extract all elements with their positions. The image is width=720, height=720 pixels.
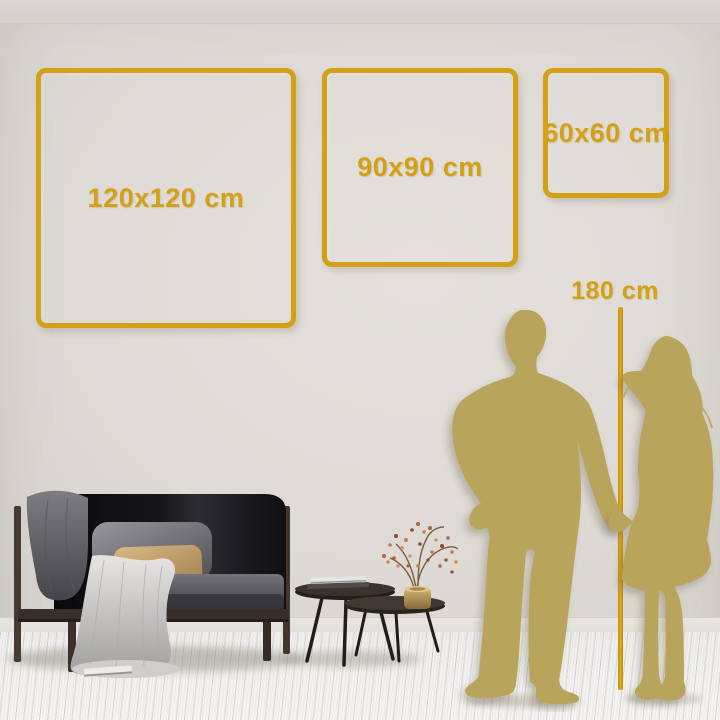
size-frame-90x90: 90x90 cm	[322, 68, 518, 267]
table-shadow	[278, 651, 422, 667]
size-frame-label: 120x120 cm	[88, 183, 245, 214]
ceiling-line	[0, 0, 720, 24]
size-frame-120x120: 120x120 cm	[36, 68, 296, 328]
vase	[404, 586, 431, 609]
dark-throw-blanket	[27, 491, 88, 601]
size-frame-label: 90x90 cm	[357, 152, 483, 183]
size-guide-scene: 120x120 cm 90x90 cm 60x60 cm 180 cm	[0, 0, 720, 720]
size-frame-60x60: 60x60 cm	[543, 68, 669, 198]
furniture-group	[0, 460, 480, 720]
man-silhouette	[452, 310, 624, 704]
woman-silhouette	[608, 336, 713, 700]
couple-silhouettes	[440, 298, 720, 712]
books-stack	[307, 576, 369, 589]
size-frame-label: 60x60 cm	[543, 118, 669, 149]
